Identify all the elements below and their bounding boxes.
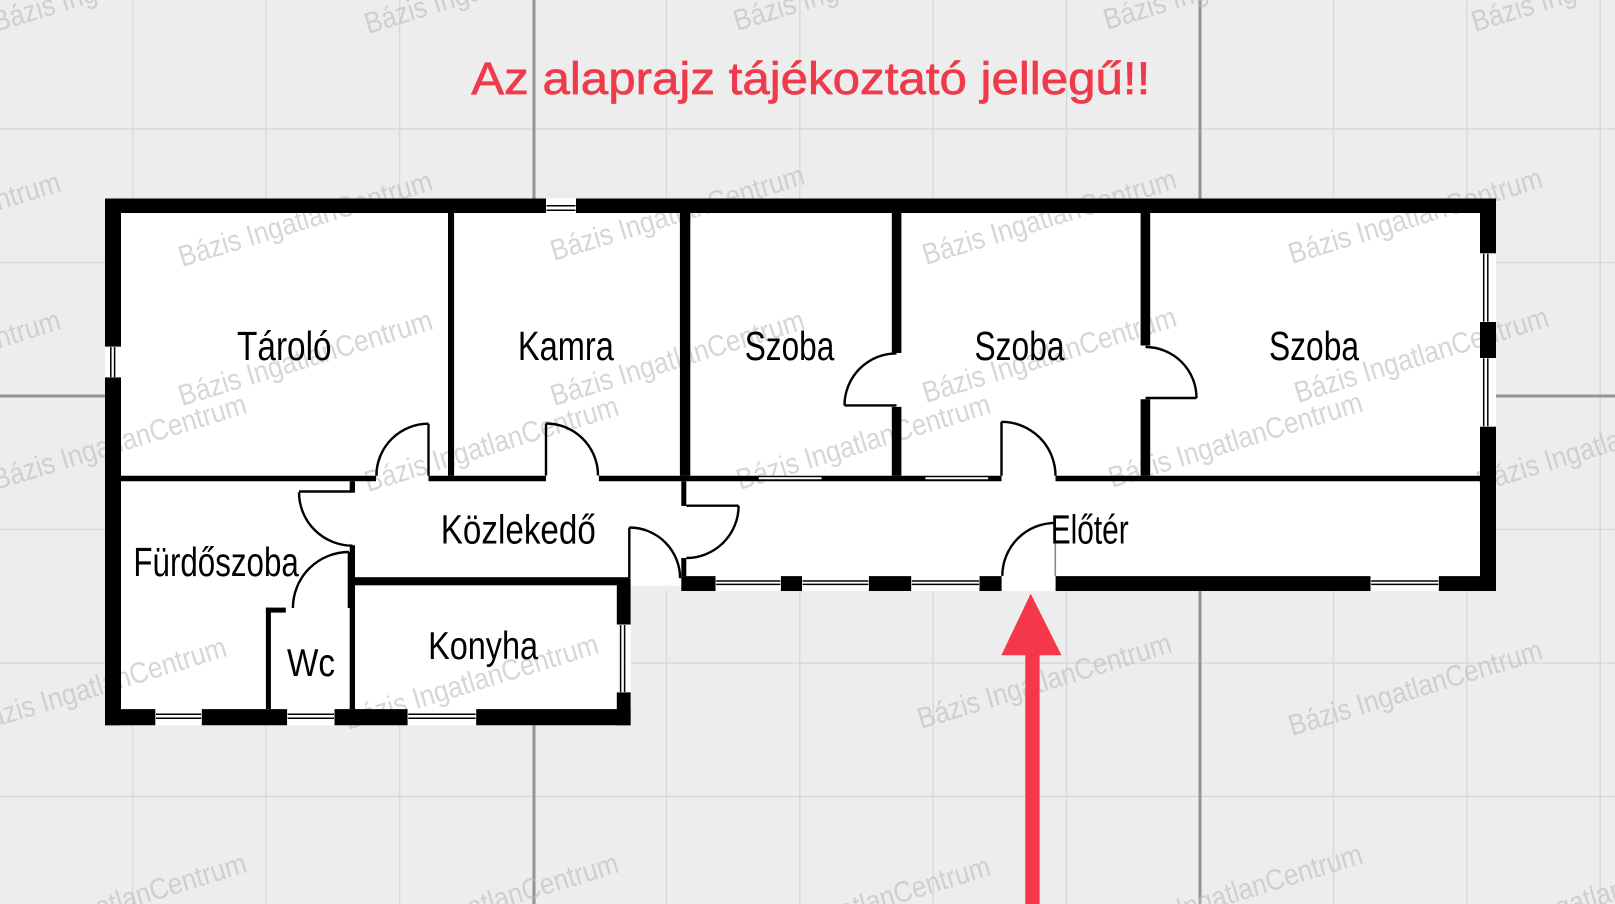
svg-text:Konyha: Konyha	[428, 625, 538, 668]
svg-text:Közlekedő: Közlekedő	[441, 506, 596, 552]
svg-text:Szoba: Szoba	[975, 323, 1065, 369]
svg-text:Előtér: Előtér	[1051, 506, 1129, 552]
svg-text:Fürdőszoba: Fürdőszoba	[133, 539, 299, 585]
svg-text:Szoba: Szoba	[1269, 323, 1359, 369]
svg-text:Wc: Wc	[287, 642, 335, 685]
svg-text:Kamra: Kamra	[518, 323, 614, 369]
svg-text:Az alaprajz tájékoztató jelleg: Az alaprajz tájékoztató jellegű!!	[471, 53, 1150, 104]
svg-text:Szoba: Szoba	[745, 323, 835, 369]
svg-text:Tároló: Tároló	[237, 323, 332, 369]
